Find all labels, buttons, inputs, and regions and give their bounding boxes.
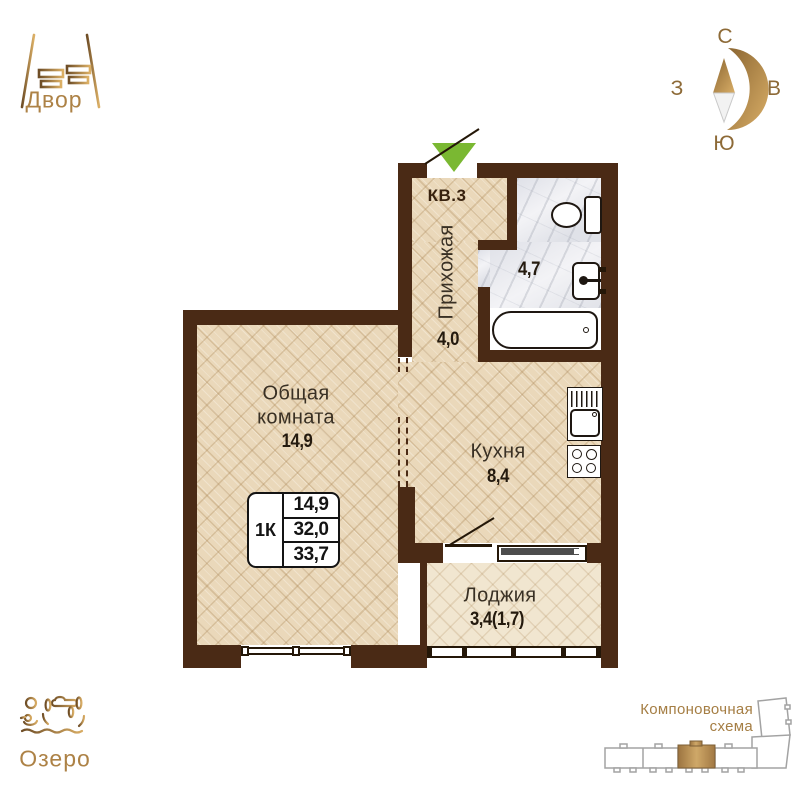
glazing-mullion bbox=[511, 648, 516, 656]
current-section-notch bbox=[690, 741, 702, 746]
loggia-area: 3,4(1,7) bbox=[470, 609, 524, 631]
bathroom-area: 4,7 bbox=[518, 259, 540, 281]
building-arm-upper bbox=[758, 698, 790, 739]
burner-icon bbox=[586, 463, 596, 473]
compass-needle-north bbox=[713, 58, 735, 93]
opening-dashed-line bbox=[406, 358, 408, 372]
apartment-number-label: КВ.3 bbox=[428, 186, 467, 206]
living-area-value: 14,9 bbox=[284, 494, 338, 519]
window-mullion bbox=[343, 646, 351, 656]
floor-plan-page: КВ.3 Прихожая 4,0 4,7 Кухня 8,4 Общая ко… bbox=[0, 0, 800, 800]
opening-dashed-line bbox=[398, 417, 400, 487]
burner-icon bbox=[572, 463, 582, 473]
compass-crescent bbox=[727, 48, 769, 130]
bathtub-drain bbox=[583, 327, 589, 333]
bathroom-door-opening bbox=[478, 250, 490, 287]
compass: С З В Ю bbox=[655, 18, 795, 153]
toilet-bowl-icon bbox=[551, 202, 582, 228]
balcony-door-threshold bbox=[445, 544, 492, 547]
entrance-marker-icon bbox=[432, 143, 476, 172]
glazing-mullion bbox=[596, 648, 601, 656]
wall bbox=[478, 240, 517, 250]
hallway-label: Прихожая bbox=[436, 224, 459, 319]
window-mullion bbox=[241, 646, 249, 656]
building-strip bbox=[605, 748, 757, 768]
burner-icon bbox=[572, 449, 582, 459]
area-value: 32,0 bbox=[284, 519, 338, 544]
wall bbox=[398, 163, 412, 357]
compass-needle-south bbox=[714, 93, 735, 122]
kitchen-area: 8,4 bbox=[487, 466, 509, 488]
wall bbox=[398, 543, 443, 563]
compass-south-label: Ю bbox=[713, 132, 734, 153]
wall bbox=[587, 543, 601, 563]
wall bbox=[183, 310, 412, 325]
scheme-title: Компоновочная схема bbox=[600, 701, 753, 735]
hallway-area: 4,0 bbox=[437, 329, 459, 351]
room-type-label: 1К bbox=[249, 494, 284, 566]
drying-rack-icon bbox=[571, 391, 599, 407]
balcony-window-cap bbox=[574, 549, 579, 554]
wall bbox=[478, 350, 618, 362]
wall bbox=[183, 310, 197, 668]
compass-north-label: С bbox=[717, 25, 732, 48]
wall bbox=[477, 163, 618, 178]
building-arm-lower bbox=[752, 735, 790, 768]
wall bbox=[507, 178, 517, 242]
pipe-tick bbox=[599, 289, 606, 294]
total-area-value: 33,7 bbox=[284, 543, 338, 566]
window-mullion bbox=[292, 646, 300, 656]
lake-label: Озеро bbox=[19, 746, 91, 773]
toilet-tank-icon bbox=[584, 196, 602, 234]
area-info-box: 1К 14,9 32,0 33,7 bbox=[247, 492, 340, 568]
loggia-label: Лоджия bbox=[464, 585, 537, 608]
wall bbox=[183, 645, 241, 668]
kitchen-label: Кухня bbox=[470, 441, 525, 464]
current-section-highlight bbox=[678, 745, 715, 768]
wall bbox=[398, 487, 415, 545]
compass-east-label: В bbox=[767, 77, 781, 100]
wall bbox=[351, 645, 427, 668]
glazing-mullion bbox=[561, 648, 566, 656]
wall bbox=[601, 163, 618, 668]
living-room-area: 14,9 bbox=[282, 431, 313, 453]
opening-dashed-line bbox=[406, 417, 408, 487]
glazing-mullion bbox=[462, 648, 467, 656]
pipe-tick bbox=[599, 267, 606, 272]
sink-drain bbox=[592, 412, 597, 417]
burner-icon bbox=[586, 449, 597, 460]
yard-label: Двор bbox=[25, 87, 82, 114]
floor-living-room bbox=[197, 325, 398, 645]
glazing-mullion bbox=[427, 648, 432, 656]
wall bbox=[420, 563, 427, 647]
living-room-label: Общая комната bbox=[235, 382, 357, 429]
compass-west-label: З bbox=[671, 77, 684, 100]
balcony-window-sash bbox=[501, 548, 579, 555]
lake-icon bbox=[15, 688, 100, 750]
opening-dashed-line bbox=[398, 358, 400, 372]
faucet-icon bbox=[579, 276, 588, 285]
